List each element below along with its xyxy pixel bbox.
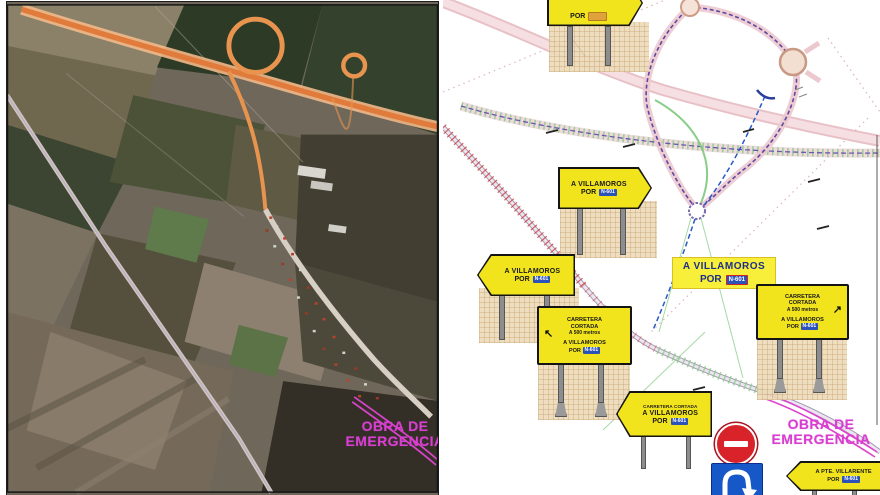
detour-sign-cortada: CARRETERA CORTADA A VILLAMOROS POR N-601 — [616, 391, 712, 437]
u-turn-arrow-icon — [712, 464, 762, 495]
sign-post — [499, 294, 505, 340]
route-badge: N-601 — [726, 275, 748, 285]
detour-sign-top: POR — [547, 0, 643, 26]
right-emergency-line2: EMERGENCIA — [766, 432, 876, 447]
up-left-arrow-icon: ↖ — [544, 329, 553, 340]
no-entry-bar — [724, 441, 748, 447]
sign-word-por: POR — [581, 189, 596, 196]
sign-destination: A PTE. VILLARENTE — [816, 469, 872, 475]
sign-destination: A VILLAMOROS — [642, 410, 698, 417]
sign-post — [641, 435, 646, 469]
right-emergency-label: OBRA DE EMERGENCIA — [766, 417, 876, 447]
detour-sign-villarente: A PTE. VILLARENTE POR N-601 — [786, 461, 880, 491]
no-entry-icon — [715, 423, 757, 465]
detour-sign-villamoros-right: A VILLAMOROS POR N-601 — [558, 167, 652, 209]
panel-line: POR N-601 — [539, 347, 630, 354]
sign-destination: A VILLAMOROS — [571, 181, 627, 188]
sign-word-por: POR — [514, 276, 529, 283]
route-badge: N-601 — [599, 189, 617, 196]
detour-sign-villamoros-left: A VILLAMOROS POR N-601 — [477, 254, 575, 296]
route-badge: N-601 — [842, 476, 860, 483]
route-badge: N-601 — [671, 418, 689, 425]
sign-post — [686, 435, 691, 469]
right-emergency-line1: OBRA DE — [766, 417, 876, 432]
sign-post — [605, 26, 611, 66]
roadworks-detour-plan: OBRA DE EMERGENCIA — [0, 0, 880, 495]
satellite-map-panel: OBRA DE EMERGENCIA — [6, 1, 439, 495]
highlight-destination: A VILLAMOROS — [676, 260, 772, 273]
sign-destination: A VILLAMOROS — [504, 268, 560, 275]
route-badge: N-601 — [801, 323, 819, 330]
roadworks-panel-sign-right: ↗ CARRETERA CORTADA A 500 metros A VILLA… — [756, 284, 849, 340]
sign-post — [567, 26, 573, 66]
sign-post — [577, 207, 583, 255]
sign-base — [549, 22, 649, 72]
sign-base — [757, 338, 847, 400]
sign-base — [560, 201, 657, 258]
left-emergency-line1: OBRA DE — [339, 419, 439, 434]
panel-line: POR N-601 — [758, 323, 847, 330]
left-emergency-line2: EMERGENCIA — [339, 434, 439, 449]
plan-flow-arrow — [757, 90, 775, 98]
route-badge — [588, 12, 607, 21]
u-turn-sign — [711, 463, 763, 495]
sign-warning: CARRETERA CORTADA — [643, 404, 697, 409]
route-badge: N-601 — [533, 276, 551, 283]
sign-post — [598, 359, 604, 409]
route-badge: N-601 — [583, 347, 601, 354]
sign-word-por: POR — [827, 477, 839, 483]
sign-word-por: POR — [570, 13, 585, 20]
sign-word-por: POR — [652, 418, 667, 425]
sign-post — [558, 359, 564, 409]
sign-post — [620, 207, 626, 255]
roadworks-panel-sign-left: ↖ CARRETERA CORTADA A 500 metros A VILLA… — [537, 306, 632, 365]
up-right-arrow-icon: ↗ — [833, 305, 842, 316]
highlight-word-por: POR — [700, 273, 722, 286]
left-emergency-label: OBRA DE EMERGENCIA — [339, 419, 439, 449]
